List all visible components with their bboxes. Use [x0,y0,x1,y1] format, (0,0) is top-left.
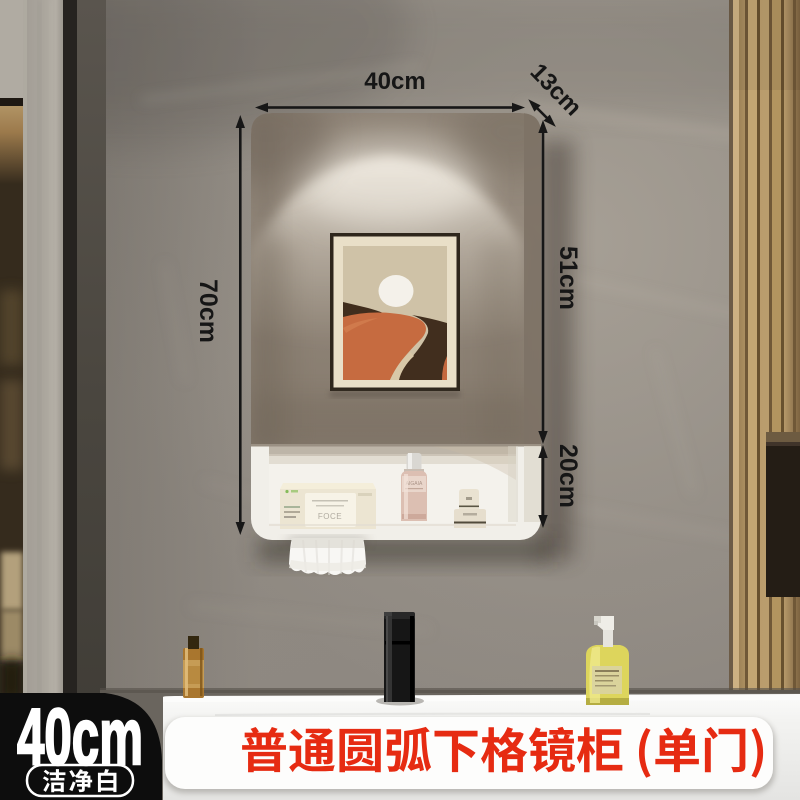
svg-text:20cm: 20cm [554,444,582,508]
svg-text:40cm: 40cm [17,692,143,781]
svg-text:70cm: 70cm [194,279,222,343]
svg-text:AIGAIA: AIGAIA [406,481,423,487]
svg-text:40cm: 40cm [364,68,425,95]
svg-text:FOCE: FOCE [318,512,342,521]
svg-text:51cm: 51cm [554,246,582,310]
